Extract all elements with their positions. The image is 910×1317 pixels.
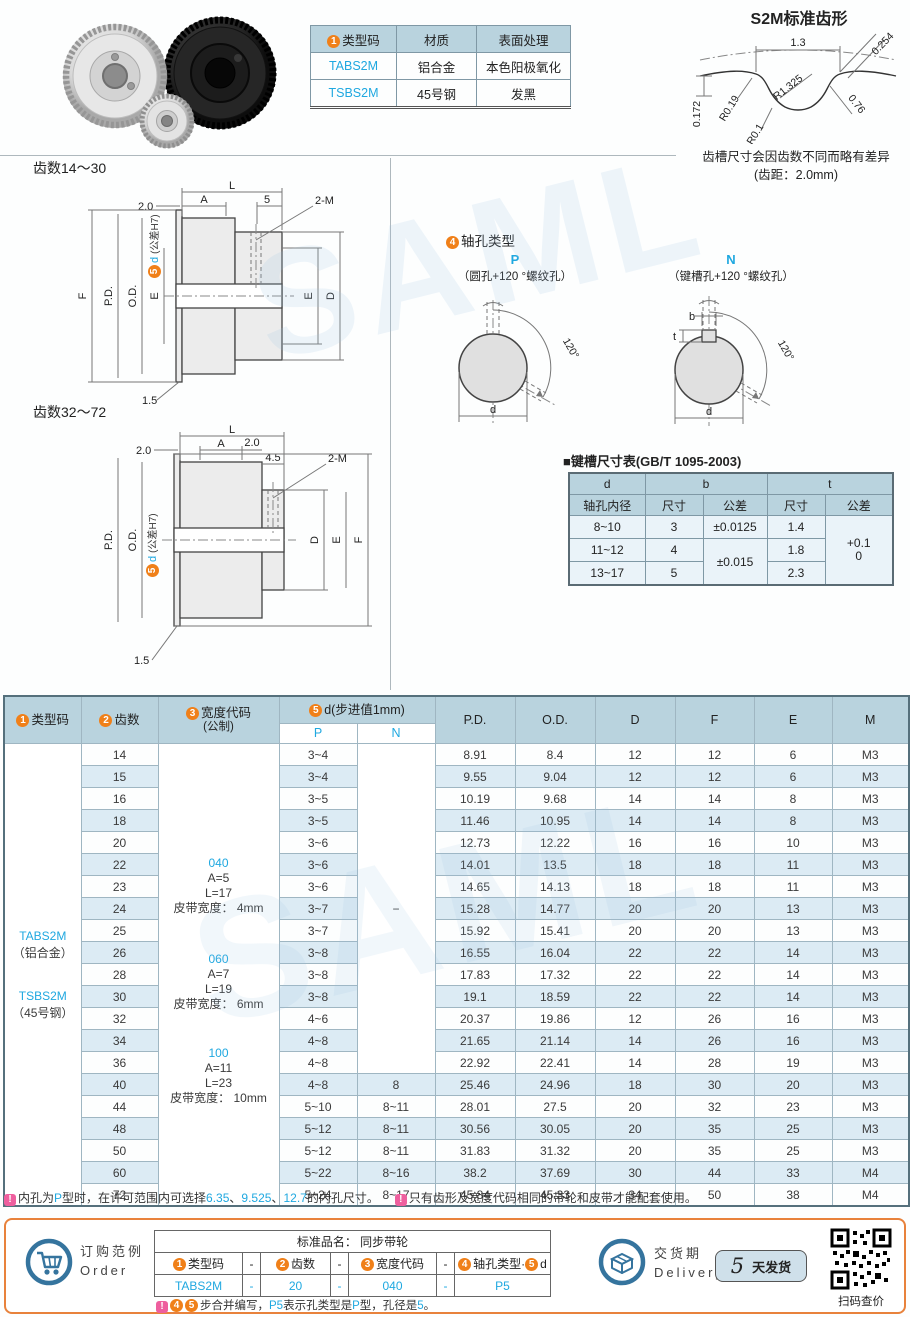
cell-value: 18 xyxy=(595,876,675,898)
keyway-table: d b t 轴孔内径 尺寸 公差 尺寸 公差 8~10 3 ±0.0125 1.… xyxy=(568,472,894,586)
cell-n: 8~16 xyxy=(357,1162,435,1184)
bore-tolerance: (公差H7) xyxy=(150,214,161,253)
cell-value: 15.92 xyxy=(435,920,515,942)
cell-value: M3 xyxy=(832,964,909,986)
cell-value: 38.2 xyxy=(435,1162,515,1184)
cell-value: 26 xyxy=(675,1008,754,1030)
cell-value: 10.19 xyxy=(435,788,515,810)
spec-table-row: 605~228~1638.237.69304433M4 xyxy=(4,1162,909,1184)
cell-value: 35 xyxy=(675,1140,754,1162)
order-header-label: 类型码 xyxy=(188,1257,224,1271)
cell-value: 25.46 xyxy=(435,1074,515,1096)
cell-value: 18 xyxy=(595,854,675,876)
shaft-type-p-diagram: 120° d xyxy=(423,286,608,436)
keyway-cell: 13~17 xyxy=(569,562,645,586)
cell-value: 12 xyxy=(675,744,754,766)
order-box: 订购范例 Order 标准品名： 同步带轮 1类型码 - 2齿数 - 3宽度代码… xyxy=(4,1218,906,1314)
order-note-text: 型，孔径是 xyxy=(360,1300,418,1312)
cell-p: 5~12 xyxy=(279,1118,357,1140)
spec-table-row: 283~817.8317.32222214M3 xyxy=(4,964,909,986)
cell-value: 22.41 xyxy=(515,1052,595,1074)
cell-p: 3~6 xyxy=(279,854,357,876)
cell-value: M3 xyxy=(832,1030,909,1052)
width-code-belt: 皮带宽度： 10mm xyxy=(159,1091,279,1106)
spec-header-row: 1类型码 2齿数 3宽度代码(公制) 5d(步进值1mm) P.D. O.D. … xyxy=(4,696,909,724)
cell-n: 8~11 xyxy=(357,1118,435,1140)
spec-table-row: 485~128~1130.5630.05203525M3 xyxy=(4,1118,909,1140)
footnote-text: 型时，在许可范围内可选择 xyxy=(62,1191,206,1205)
order-header-label: d xyxy=(540,1257,547,1271)
cell-value: M4 xyxy=(832,1162,909,1184)
cell-value: 14.77 xyxy=(515,898,595,920)
col-header-pd: P.D. xyxy=(435,696,515,744)
cell-value: 20 xyxy=(595,898,675,920)
spec-table-row: 223~614.0113.5181811M3 xyxy=(4,854,909,876)
cell-value: 22.92 xyxy=(435,1052,515,1074)
dim-A: A xyxy=(217,438,225,450)
order-header-label: 齿数 xyxy=(291,1257,315,1271)
cell-p: 3~7 xyxy=(279,898,357,920)
order-product-title: 标准品名： 同步带轮 xyxy=(155,1231,551,1253)
bore-label-d-h7: 5d (公差H7) xyxy=(144,513,159,577)
cell-value: 22 xyxy=(675,986,754,1008)
order-table: 标准品名： 同步带轮 1类型码 - 2齿数 - 3宽度代码 - 4轴孔类型·5d… xyxy=(154,1230,551,1297)
cell-value: 20 xyxy=(595,1118,675,1140)
order-dash: - xyxy=(243,1275,261,1297)
dim-E-left: E xyxy=(149,292,161,299)
cell-p: 3~6 xyxy=(279,832,357,854)
exclamation-icon: ! xyxy=(4,1194,16,1206)
width-code-a: A=11 xyxy=(159,1061,279,1076)
cell-p: 3~8 xyxy=(279,942,357,964)
cell-value: 16.55 xyxy=(435,942,515,964)
delivery-days: 5 xyxy=(731,1254,744,1278)
cell-value: 18.59 xyxy=(515,986,595,1008)
cell-value: 30.05 xyxy=(515,1118,595,1140)
shaft-type-p-code: P xyxy=(420,252,610,267)
cell-p: 5~22 xyxy=(279,1162,357,1184)
tooth-profile-note: 齿槽尺寸会因齿数不同而略有差异 xyxy=(682,146,910,165)
tooth-profile-diagram: 1.3 0.254 R0.19 R1.325 0.172 0.76 R0.1 xyxy=(692,26,904,144)
cell-teeth: 30 xyxy=(81,986,158,1008)
order-header-row: 1类型码 - 2齿数 - 3宽度代码 - 4轴孔类型·5d xyxy=(155,1253,551,1275)
cell-value: 20.37 xyxy=(435,1008,515,1030)
dim-D: D xyxy=(309,536,321,544)
cell-value: 14 xyxy=(675,810,754,832)
label-screw-2m: 2-M xyxy=(328,453,347,465)
type-code-line: （45号钢） xyxy=(5,1005,81,1022)
keyway-cell: 11~12 xyxy=(569,539,645,562)
order-dash: - xyxy=(437,1275,455,1297)
cell-value: M3 xyxy=(832,810,909,832)
cell-p: 4~6 xyxy=(279,1008,357,1030)
cell-value: M3 xyxy=(832,1118,909,1140)
keyway-header-b: b xyxy=(645,473,767,495)
divider-horizontal xyxy=(0,155,676,156)
cell-value: 16.04 xyxy=(515,942,595,964)
dim-flange: 1.5 xyxy=(134,655,149,667)
dim-L: L xyxy=(229,424,235,436)
badge-5: 5 xyxy=(148,265,161,278)
dim-offset: 2.0 xyxy=(138,201,153,213)
cell-value: 31.83 xyxy=(435,1140,515,1162)
cell-n: 8 xyxy=(357,1074,435,1096)
badge-2: 2 xyxy=(276,1258,289,1271)
cell-value: 25 xyxy=(754,1118,832,1140)
cell-value: M3 xyxy=(832,766,909,788)
material-header-type: 1类型码 xyxy=(311,26,397,53)
dim-r2: R1.325 xyxy=(771,72,805,102)
dim-A: A xyxy=(200,194,208,206)
cell-value: 27.5 xyxy=(515,1096,595,1118)
cell-value: 19.1 xyxy=(435,986,515,1008)
cell-value: 12 xyxy=(595,1008,675,1030)
order-header-label: 轴孔类型· xyxy=(473,1257,525,1271)
order-value-row: TABS2M - 20 - 040 - P5 xyxy=(155,1275,551,1297)
dim-E: E xyxy=(331,536,343,543)
cell-value: 9.68 xyxy=(515,788,595,810)
cell-value: 21.14 xyxy=(515,1030,595,1052)
cell-p: 3~5 xyxy=(279,788,357,810)
cell-teeth: 15 xyxy=(81,766,158,788)
type-code-line: TSBS2M xyxy=(5,988,81,1005)
cell-value: 10.95 xyxy=(515,810,595,832)
cell-p: 5~12 xyxy=(279,1140,357,1162)
spec-table-row: 344~821.6521.14142616M3 xyxy=(4,1030,909,1052)
cell-value: 15.41 xyxy=(515,920,595,942)
cell-value: 16 xyxy=(675,832,754,854)
cell-value: 35 xyxy=(675,1118,754,1140)
keyway-header-d: d xyxy=(569,473,645,495)
cell-p: 3~8 xyxy=(279,986,357,1008)
cell-value: 12.22 xyxy=(515,832,595,854)
dim-d: d xyxy=(489,404,495,416)
cell-value: 14 xyxy=(595,810,675,832)
cell-value: 24.96 xyxy=(515,1074,595,1096)
col-header-width-label: 宽度代码 xyxy=(201,706,251,720)
col-header-F: F xyxy=(675,696,754,744)
cell-value: 16 xyxy=(595,832,675,854)
badge-1: 1 xyxy=(16,714,29,727)
delivery-days-badge: 5 天发货 xyxy=(715,1250,807,1282)
cell-value: 11 xyxy=(754,876,832,898)
cell-value: M3 xyxy=(832,942,909,964)
width-code-group: 060A=7L=19皮带宽度： 6mm xyxy=(159,952,279,1012)
width-code-a: A=5 xyxy=(159,871,279,886)
order-example-label: 订购范例 Order xyxy=(80,1242,144,1280)
order-label-en: Order xyxy=(80,1261,144,1280)
keyway-header-size: 尺寸 xyxy=(767,495,825,516)
keyway-cell: 3 xyxy=(645,516,703,539)
order-value-teeth: 20 xyxy=(261,1275,331,1297)
spec-table-row: 303~819.118.59222214M3 xyxy=(4,986,909,1008)
spec-table-row: 153~49.559.0412126M3 xyxy=(4,766,909,788)
cell-value: 28.01 xyxy=(435,1096,515,1118)
type-code-line: TABS2M xyxy=(5,928,81,945)
cell-value: 14 xyxy=(595,788,675,810)
cell-value: 8.91 xyxy=(435,744,515,766)
angle-label: 120° xyxy=(775,338,796,363)
cell-value: 20 xyxy=(595,1140,675,1162)
type-code-line: （铝合金） xyxy=(5,945,81,962)
cell-p: 4~8 xyxy=(279,1052,357,1074)
dim-D: D xyxy=(325,292,337,300)
exclamation-icon: ! xyxy=(395,1194,407,1206)
cell-teeth: 24 xyxy=(81,898,158,920)
cart-icon xyxy=(25,1238,73,1286)
cell-n: 8~11 xyxy=(357,1096,435,1118)
col-header-d-label: d(步进值1mm) xyxy=(324,703,405,717)
keyway-subheader-row: 轴孔内径 尺寸 公差 尺寸 公差 xyxy=(569,495,893,516)
keyway-header-row: d b t xyxy=(569,473,893,495)
cell-value: 22 xyxy=(595,942,675,964)
spec-table-row: 233~614.6514.13181811M3 xyxy=(4,876,909,898)
product-photo xyxy=(15,8,290,150)
cell-value: 11 xyxy=(754,854,832,876)
shaft-type-n-diagram: b t 120° d xyxy=(631,286,831,436)
col-header-width-metric: (公制) xyxy=(159,721,279,734)
badge-4: 4 xyxy=(458,1258,471,1271)
cell-value: 9.04 xyxy=(515,766,595,788)
cell-value: M3 xyxy=(832,788,909,810)
badge-2: 2 xyxy=(99,714,112,727)
badge-5: 5 xyxy=(185,1299,198,1312)
dim-b: b xyxy=(689,311,695,323)
badge-3: 3 xyxy=(186,707,199,720)
width-code-code: 100 xyxy=(159,1046,279,1061)
badge-1: 1 xyxy=(327,35,340,48)
shaft-hole-type-p: P （圆孔+120 °螺纹孔） 120° d xyxy=(420,252,610,441)
tooth-pitch-note: (齿距：2.0mm) xyxy=(682,164,910,183)
footnote-text: 的内孔尺寸。 xyxy=(307,1191,379,1205)
cell-value: 28 xyxy=(675,1052,754,1074)
spec-table-row: TABS2M（铝合金）TSBS2M（45号钢）14040A=5L=17皮带宽度：… xyxy=(4,744,909,766)
dim-F: F xyxy=(77,292,89,299)
dim-E-right: E xyxy=(303,292,315,299)
cell-p: 5~10 xyxy=(279,1096,357,1118)
spec-table-row: 445~108~1128.0127.5203223M3 xyxy=(4,1096,909,1118)
cell-value: 12 xyxy=(595,744,675,766)
cell-value: M3 xyxy=(832,832,909,854)
cell-value: 37.69 xyxy=(515,1162,595,1184)
cell-value: 17.83 xyxy=(435,964,515,986)
col-header-width-code: 3宽度代码(公制) xyxy=(158,696,279,744)
cell-teeth: 14 xyxy=(81,744,158,766)
cell-value: 22 xyxy=(595,964,675,986)
keyway-header-size: 尺寸 xyxy=(645,495,703,516)
cell-value: 14 xyxy=(754,942,832,964)
drawing-teeth-14-30: 2-M L A 2.0 5 F P.D. O.D. E E D 1.5 xyxy=(30,176,380,406)
order-dash: - xyxy=(331,1253,349,1275)
silver-pulley-small xyxy=(140,94,194,148)
footnote-2: !只有齿形及宽度代码相同的带轮和皮带才能配套使用。 xyxy=(395,1189,697,1206)
type-code-cell: TABS2M（铝合金）TSBS2M（45号钢） xyxy=(4,744,81,1207)
cell-teeth: 18 xyxy=(81,810,158,832)
col-header-D: D xyxy=(595,696,675,744)
cell-teeth: 44 xyxy=(81,1096,158,1118)
dim-offset-right: 2.0 xyxy=(244,437,259,449)
cell-p: 4~8 xyxy=(279,1074,357,1096)
order-dash: - xyxy=(331,1275,349,1297)
cell-value: 12.73 xyxy=(435,832,515,854)
cell-value: M3 xyxy=(832,854,909,876)
type-code-tabs2m: TABS2M xyxy=(311,53,397,80)
order-note-text: 表示孔类型是 xyxy=(283,1300,352,1312)
cell-teeth: 26 xyxy=(81,942,158,964)
order-value-width: 040 xyxy=(349,1275,437,1297)
keyway-row: 8~10 3 ±0.0125 1.4 +0.1 0 xyxy=(569,516,893,539)
cell-value: 16 xyxy=(754,1030,832,1052)
order-note-text: P xyxy=(352,1300,360,1312)
dim-side: 0.76 xyxy=(845,92,867,116)
keyway-cell: 4 xyxy=(645,539,703,562)
width-code-l: L=17 xyxy=(159,886,279,901)
keyway-header-t: t xyxy=(767,473,893,495)
cell-p: 3~5 xyxy=(279,810,357,832)
type-code-tsbs2m: TSBS2M xyxy=(311,80,397,108)
cell-value: M3 xyxy=(832,986,909,1008)
spec-table-row: 505~128~1131.8331.32203525M3 xyxy=(4,1140,909,1162)
cell-value: 33 xyxy=(754,1162,832,1184)
col-header-N: N xyxy=(357,724,435,744)
cell-value: 13 xyxy=(754,898,832,920)
cell-teeth: 48 xyxy=(81,1118,158,1140)
cell-teeth: 22 xyxy=(81,854,158,876)
shaft-type-p-desc: （圆孔+120 °螺纹孔） xyxy=(420,268,610,284)
cell-n: 8~11 xyxy=(357,1140,435,1162)
footnote-text: 只有齿形及宽度代码相同的带轮和皮带才能配套使用。 xyxy=(409,1191,697,1205)
material-value: 铝合金 xyxy=(397,53,477,80)
cell-value: 31.32 xyxy=(515,1140,595,1162)
divider-vertical xyxy=(390,158,391,690)
dim-depth: 0.172 xyxy=(692,101,703,127)
spec-table-row: 404~8825.4624.96183020M3 xyxy=(4,1074,909,1096)
n-merged-cell: − xyxy=(357,744,435,1074)
footnote-text: P xyxy=(54,1191,62,1205)
cell-value: 10 xyxy=(754,832,832,854)
keyway-cell: ±0.0125 xyxy=(703,516,767,539)
spec-table-row: 324~620.3719.86122616M3 xyxy=(4,1008,909,1030)
width-code-code: 040 xyxy=(159,856,279,871)
cell-value: M3 xyxy=(832,1096,909,1118)
spec-table-row: 163~510.199.6814148M3 xyxy=(4,788,909,810)
col-header-E: E xyxy=(754,696,832,744)
order-note-text: P5 xyxy=(269,1300,283,1312)
cell-value: 19 xyxy=(754,1052,832,1074)
order-header-width: 3宽度代码 xyxy=(349,1253,437,1275)
qr-code xyxy=(830,1228,892,1290)
keyway-cell: 2.3 xyxy=(767,562,825,586)
dim-PD: P.D. xyxy=(103,530,115,550)
cell-value: 26 xyxy=(675,1030,754,1052)
delivery-box-icon xyxy=(598,1238,646,1286)
cell-value: 11.46 xyxy=(435,810,515,832)
cell-value: 20 xyxy=(595,1096,675,1118)
finish-value: 本色阳极氧化 xyxy=(477,53,571,80)
cell-teeth: 25 xyxy=(81,920,158,942)
dim-d: d xyxy=(706,406,712,418)
spec-table-row: 253~715.9215.41202013M3 xyxy=(4,920,909,942)
cell-value: M3 xyxy=(832,744,909,766)
width-code-cell: 040A=5L=17皮带宽度： 4mm060A=7L=19皮带宽度： 6mm10… xyxy=(158,744,279,1207)
footnote-text: 12.7 xyxy=(283,1191,306,1205)
cell-value: 18 xyxy=(675,854,754,876)
spec-table-row: 364~822.9222.41142819M3 xyxy=(4,1052,909,1074)
order-note: !45步合并编写，P5表示孔类型是P型，孔径是5。 xyxy=(156,1297,435,1313)
cell-value: 8.4 xyxy=(515,744,595,766)
footnote-text: 9.525 xyxy=(241,1191,271,1205)
cell-value: 22 xyxy=(675,964,754,986)
spec-table-row: 203~612.7312.22161610M3 xyxy=(4,832,909,854)
order-value-shaft: P5 xyxy=(455,1275,551,1297)
shaft-hole-title: 4轴孔类型 xyxy=(446,230,515,250)
order-header-label: 宽度代码 xyxy=(376,1257,424,1271)
cell-value: 19.86 xyxy=(515,1008,595,1030)
cell-value: M3 xyxy=(832,898,909,920)
order-title-row: 标准品名： 同步带轮 xyxy=(155,1231,551,1253)
cell-value: 20 xyxy=(675,920,754,942)
width-code-belt: 皮带宽度： 4mm xyxy=(159,901,279,916)
keyway-cell: 1.8 xyxy=(767,539,825,562)
keyway-t-tolerance: +0.1 0 xyxy=(825,516,893,586)
cell-value: 16 xyxy=(754,1008,832,1030)
width-code-group: 100A=11L=23皮带宽度： 10mm xyxy=(159,1046,279,1106)
order-note-text: 步合并编写， xyxy=(200,1300,269,1312)
dim-t: t xyxy=(673,331,676,343)
cell-teeth: 40 xyxy=(81,1074,158,1096)
cell-value: 14.65 xyxy=(435,876,515,898)
order-label-cn: 订购范例 xyxy=(80,1242,144,1261)
col-header-d: 5d(步进值1mm) xyxy=(279,696,435,724)
cell-value: 21.65 xyxy=(435,1030,515,1052)
shaft-type-n-code: N xyxy=(628,252,834,267)
width-code-l: L=19 xyxy=(159,982,279,997)
cell-teeth: 50 xyxy=(81,1140,158,1162)
cell-value: 18 xyxy=(595,1074,675,1096)
angle-label: 120° xyxy=(559,336,580,361)
width-code-belt: 皮带宽度： 6mm xyxy=(159,997,279,1012)
qr-label: 扫码查价 xyxy=(816,1293,906,1309)
bore-label-d-h7: 5d (公差H7) xyxy=(146,214,161,278)
catalog-page: 1类型码 材质 表面处理 TABS2M 铝合金 本色阳极氧化 TSBS2M 45… xyxy=(0,0,910,1317)
col-header-teeth-label: 齿数 xyxy=(114,713,139,727)
col-header-type-label: 类型码 xyxy=(31,713,69,727)
cell-value: M3 xyxy=(832,920,909,942)
cell-value: 6 xyxy=(754,744,832,766)
cell-value: 20 xyxy=(595,920,675,942)
material-header-type-label: 类型码 xyxy=(342,34,380,48)
cell-value: 8 xyxy=(754,810,832,832)
dim-5: 5 xyxy=(264,194,270,206)
bore-tolerance: (公差H7) xyxy=(148,513,159,552)
delivery-unit: 天发货 xyxy=(752,1257,791,1276)
cell-value: 8 xyxy=(754,788,832,810)
dim-F: F xyxy=(353,536,365,543)
cell-p: 3~7 xyxy=(279,920,357,942)
drawing2-title: 齿数32～72 xyxy=(33,402,106,422)
badge-5: 5 xyxy=(525,1258,538,1271)
dim-OD: O.D. xyxy=(127,529,139,552)
badge-4: 4 xyxy=(446,236,459,249)
col-header-od: O.D. xyxy=(515,696,595,744)
cell-value: 32 xyxy=(675,1096,754,1118)
keyway-header-tolerance: 公差 xyxy=(825,495,893,516)
spec-table: 1类型码 2齿数 3宽度代码(公制) 5d(步进值1mm) P.D. O.D. … xyxy=(3,695,910,1207)
cell-teeth: 23 xyxy=(81,876,158,898)
cell-value: 14.13 xyxy=(515,876,595,898)
dim-r-tip: 0.254 xyxy=(869,30,896,57)
col-header-teeth: 2齿数 xyxy=(81,696,158,744)
